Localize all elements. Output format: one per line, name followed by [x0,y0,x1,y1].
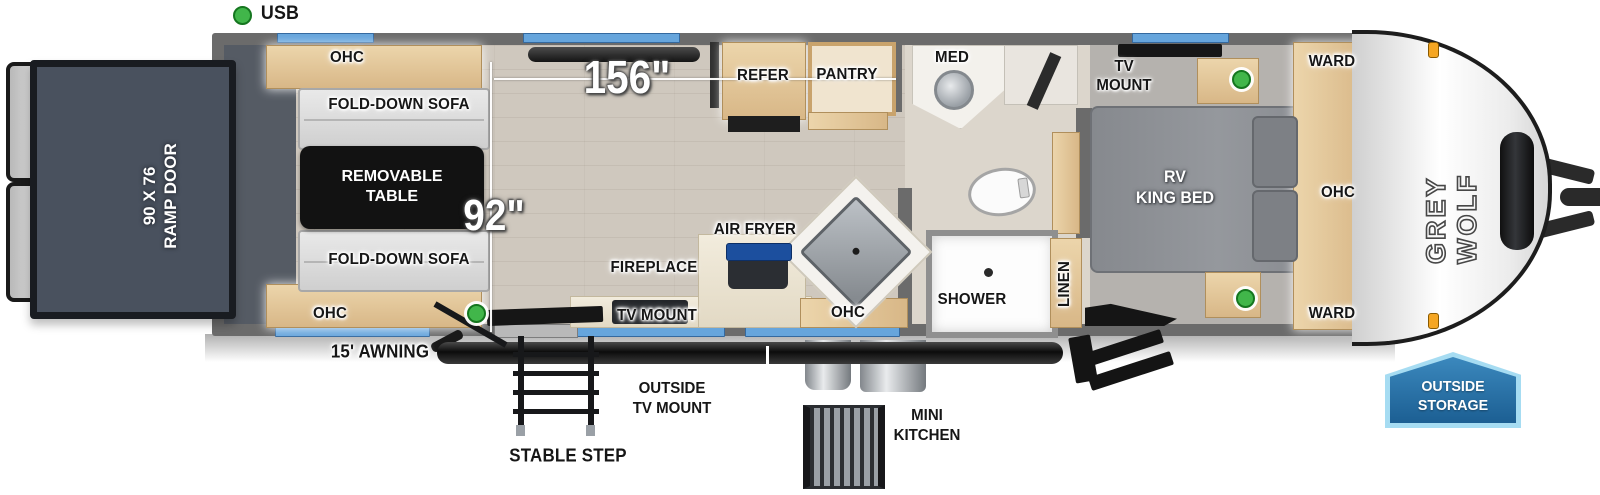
marker-light-bottom-icon [1428,313,1439,329]
linen-label: LINEN [1056,261,1074,307]
bed-pillow-top [1252,116,1298,188]
king-bed-label: RV KING BED [1136,166,1214,208]
range-body [728,261,788,289]
removable-table-label: REMOVABLE TABLE [341,167,442,207]
bedroom-tv-label-2: MOUNT [1096,76,1151,95]
bedroom-tv-mount-label: TV MOUNT [1096,57,1151,95]
med-label: MED [935,49,969,67]
window-living-top [523,33,680,43]
mini-kitchen-grill [803,405,885,489]
refrigerator-base [728,116,800,132]
step-rail-right [588,336,594,428]
ramp-door-size: 90 X 76 [139,143,160,248]
outside-storage-badge: OUTSIDE STORAGE [1385,352,1521,428]
pantry-label: PANTRY [816,66,877,84]
kitchen-ohc-label: OHC [831,304,865,322]
bath-sink [934,70,974,110]
outside-storage-label-2: STORAGE [1388,397,1517,414]
awning-label: 15' AWNING [331,342,429,363]
outside-storage-label-1: OUTSIDE [1388,378,1517,395]
bed-pillow-bottom [1252,190,1298,262]
bedroom-tv [1118,44,1222,57]
rv-floorplan-diagram: USB 90 X 76 RAMP DOOR REMOVABLE TABLE OH… [0,0,1600,495]
power-cord [766,346,797,407]
usb-dot-nightstand-bottom [1236,289,1255,308]
shower-label: SHOWER [938,291,1007,309]
garage-ohc-top-label: OHC [330,49,364,67]
mini-kitchen-label-1: MINI [894,406,961,426]
air-fryer-cooktop [726,243,792,261]
ramp-door-text: RAMP DOOR [160,143,181,248]
bedroom-ohc-label: OHC [1321,184,1355,202]
table-label-1: REMOVABLE [341,167,442,187]
marker-light-top-icon [1428,42,1439,58]
living-tv-mount-label: TV MOUNT [617,307,697,325]
window-bedroom-top [1132,33,1229,43]
mini-kitchen-label: MINI KITCHEN [894,406,961,446]
step-rail-left [518,336,524,428]
propane-cover [1500,132,1534,250]
outside-tv-label-2: TV MOUNT [633,399,712,419]
ramp-door-label: 90 X 76 RAMP DOOR [139,143,181,248]
step-rung-2 [513,371,599,376]
bedroom-tv-label-1: TV [1096,57,1151,76]
shower-drain [984,268,993,277]
outside-tv-mount-label: OUTSIDE TV MOUNT [633,379,712,419]
ramp-door [30,60,236,319]
divider-refer [710,42,719,108]
hitch-coupler [1560,188,1600,206]
step-rung-4 [513,409,599,414]
dim-156-label: 156" [584,50,671,104]
mini-kitchen-label-2: KITCHEN [894,426,961,446]
window-garage-bottom [275,327,430,337]
toilet-hinge [1017,177,1030,198]
step-rung-3 [513,390,599,395]
garage-ohc-top-cabinet [266,45,482,89]
ward-top-label: WARD [1309,53,1356,71]
bath-vanity [1052,132,1080,234]
garage-ohc-bottom-label: OHC [313,305,347,323]
fireplace-label: FIREPLACE [611,259,698,277]
window-living-bottom [573,327,725,337]
shower-stall [926,230,1058,338]
brand-logo: GREY WOLF [1421,116,1483,264]
window-garage-top [277,33,374,43]
step-foot-right [586,425,595,436]
stable-step-label: STABLE STEP [509,446,626,467]
step-foot-left [516,425,525,436]
bed-label-1: RV [1136,166,1214,187]
usb-dot-nightstand-top [1232,70,1251,89]
ward-bottom-label: WARD [1309,305,1356,323]
air-fryer-label: AIR FRYER [714,221,796,239]
pantry-shelf [808,112,888,130]
fold-down-sofa-bottom-label: FOLD-DOWN SOFA [328,251,469,269]
bed-label-2: KING BED [1136,187,1214,208]
window-kitchen-bottom [745,327,900,337]
fold-down-sofa-top-label: FOLD-DOWN SOFA [328,96,469,114]
main-entry-door [494,324,578,338]
table-label-2: TABLE [341,187,442,207]
outside-tv-label-1: OUTSIDE [633,379,712,399]
usb-legend-dot-icon [233,6,252,25]
usb-dot-garage [467,304,486,323]
dim-92-label: 92" [463,191,524,241]
usb-legend-label: USB [261,3,299,25]
refer-label: REFER [737,67,789,85]
step-rung-1 [513,352,599,357]
